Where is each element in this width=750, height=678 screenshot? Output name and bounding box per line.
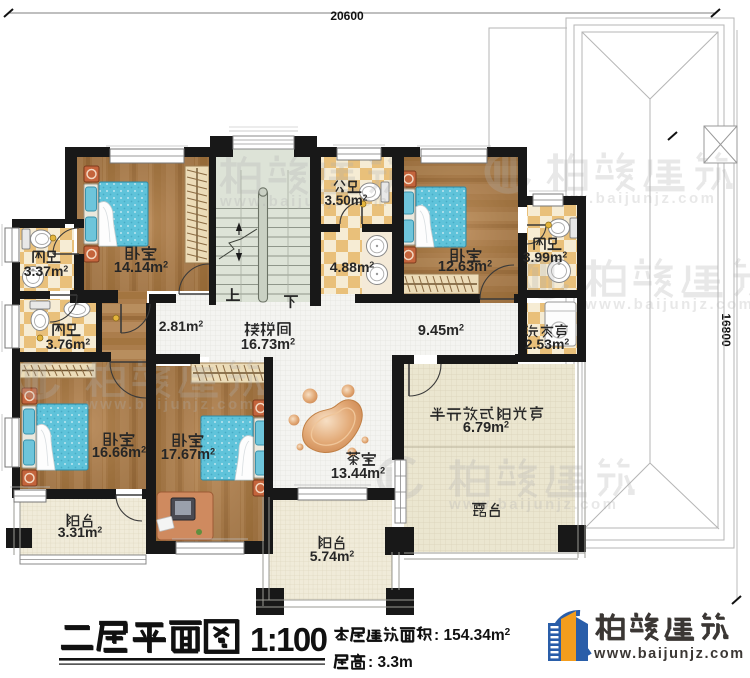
svg-text:16.66m2: 16.66m2 <box>92 444 146 461</box>
svg-text:: 154.34m2: : 154.34m2 <box>434 627 511 644</box>
svg-text:www.baijunjz.com: www.baijunjz.com <box>593 646 745 662</box>
svg-text:20600: 20600 <box>330 9 364 23</box>
svg-text:1:100: 1:100 <box>250 621 328 658</box>
svg-text:16.73m2: 16.73m2 <box>241 336 295 353</box>
svg-text:2.81m2: 2.81m2 <box>159 318 204 334</box>
svg-text:16800: 16800 <box>719 313 733 347</box>
svg-text:www.baijunjz.com: www.baijunjz.com <box>584 296 750 313</box>
svg-text:5.74m2: 5.74m2 <box>310 548 355 564</box>
svg-text:9.45m2: 9.45m2 <box>418 322 464 339</box>
svg-text:3.99m2: 3.99m2 <box>523 249 568 265</box>
svg-text:6.79m2: 6.79m2 <box>463 419 509 436</box>
svg-text:: 3.3m: : 3.3m <box>368 654 413 671</box>
svg-text:14.14m2: 14.14m2 <box>114 259 168 276</box>
svg-text:3.76m2: 3.76m2 <box>46 336 91 352</box>
svg-text:12.63m2: 12.63m2 <box>438 258 492 275</box>
svg-text:3.50m2: 3.50m2 <box>325 193 368 208</box>
svg-text:3.37m2: 3.37m2 <box>24 263 69 279</box>
svg-text:17.67m2: 17.67m2 <box>161 446 215 463</box>
svg-text:www.baijunjz.com: www.baijunjz.com <box>85 396 255 413</box>
svg-text:13.44m2: 13.44m2 <box>331 465 385 482</box>
svg-text:2.53m2: 2.53m2 <box>525 336 570 352</box>
svg-text:3.31m2: 3.31m2 <box>58 524 103 540</box>
svg-text:4.88m2: 4.88m2 <box>330 259 375 275</box>
